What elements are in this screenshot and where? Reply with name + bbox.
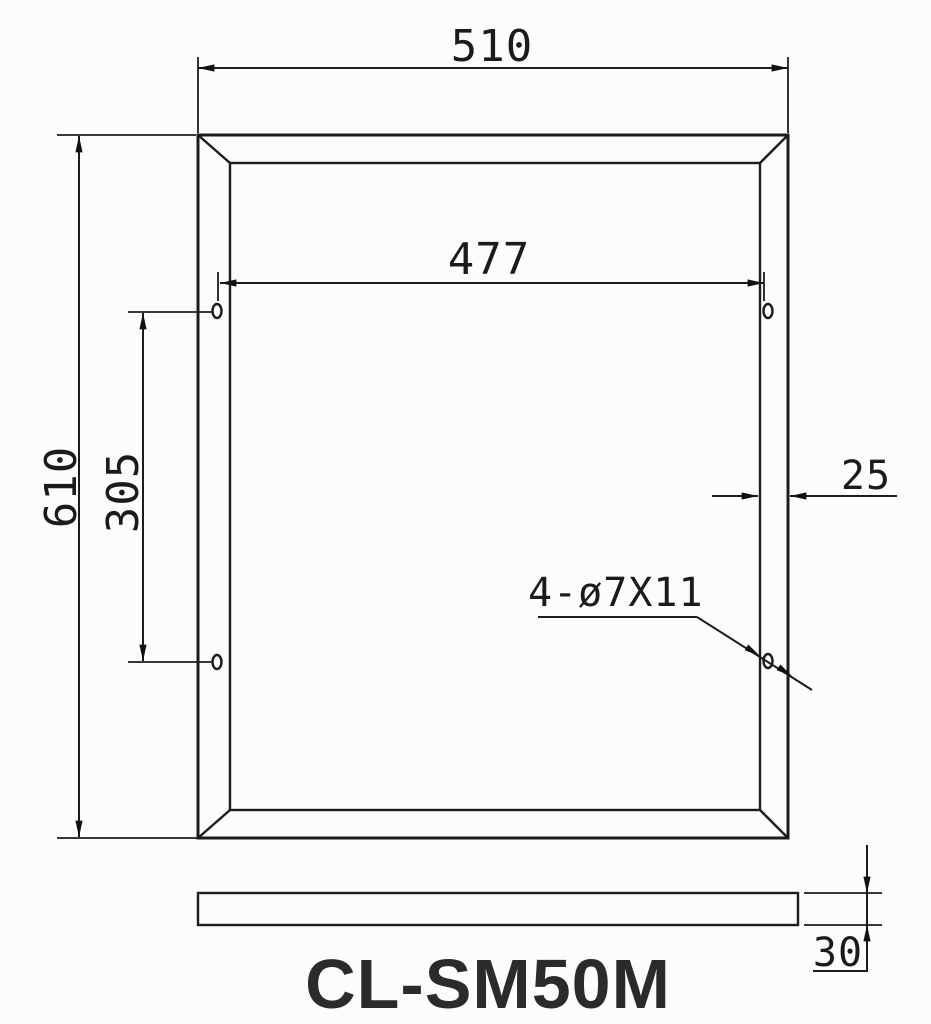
dimension-value-frame-face: 25 [841, 453, 891, 499]
model-title: CL-SM50M [305, 945, 671, 1023]
mounting-hole-top-right [764, 304, 773, 318]
miter-joint-bottom-left [198, 810, 230, 838]
dimension-value-hole-span-v: 305 [98, 451, 149, 533]
holes-callout-label: 4-ø7X11 [528, 570, 704, 616]
dimension-value-profile-thickness: 30 [813, 930, 863, 976]
dim-outer-width: 510 [198, 21, 788, 133]
dimension-value-hole-span-h: 477 [448, 234, 530, 285]
dim-hole-span-horizontal: 477 [218, 234, 764, 301]
dimension-value-outer-height: 610 [36, 446, 87, 528]
technical-drawing-canvas: 510 610 477 305 25 [0, 0, 931, 1024]
profile-bar [198, 893, 798, 925]
miter-joint-top-left [198, 135, 230, 163]
dim-frame-face-width: 25 [712, 453, 897, 499]
mounting-hole-top-left [213, 304, 222, 318]
holes-callout: 4-ø7X11 [528, 570, 812, 690]
mounting-hole-bottom-left [213, 655, 222, 669]
dim-profile-thickness: 30 [804, 845, 882, 976]
dim-hole-span-vertical: 305 [98, 312, 212, 662]
miter-joint-bottom-right [760, 810, 788, 838]
drawing-sheet: 510 610 477 305 25 [0, 0, 931, 1024]
dimension-value-outer-width: 510 [451, 21, 533, 72]
side-profile-view [198, 893, 798, 925]
miter-joint-top-right [760, 135, 788, 163]
